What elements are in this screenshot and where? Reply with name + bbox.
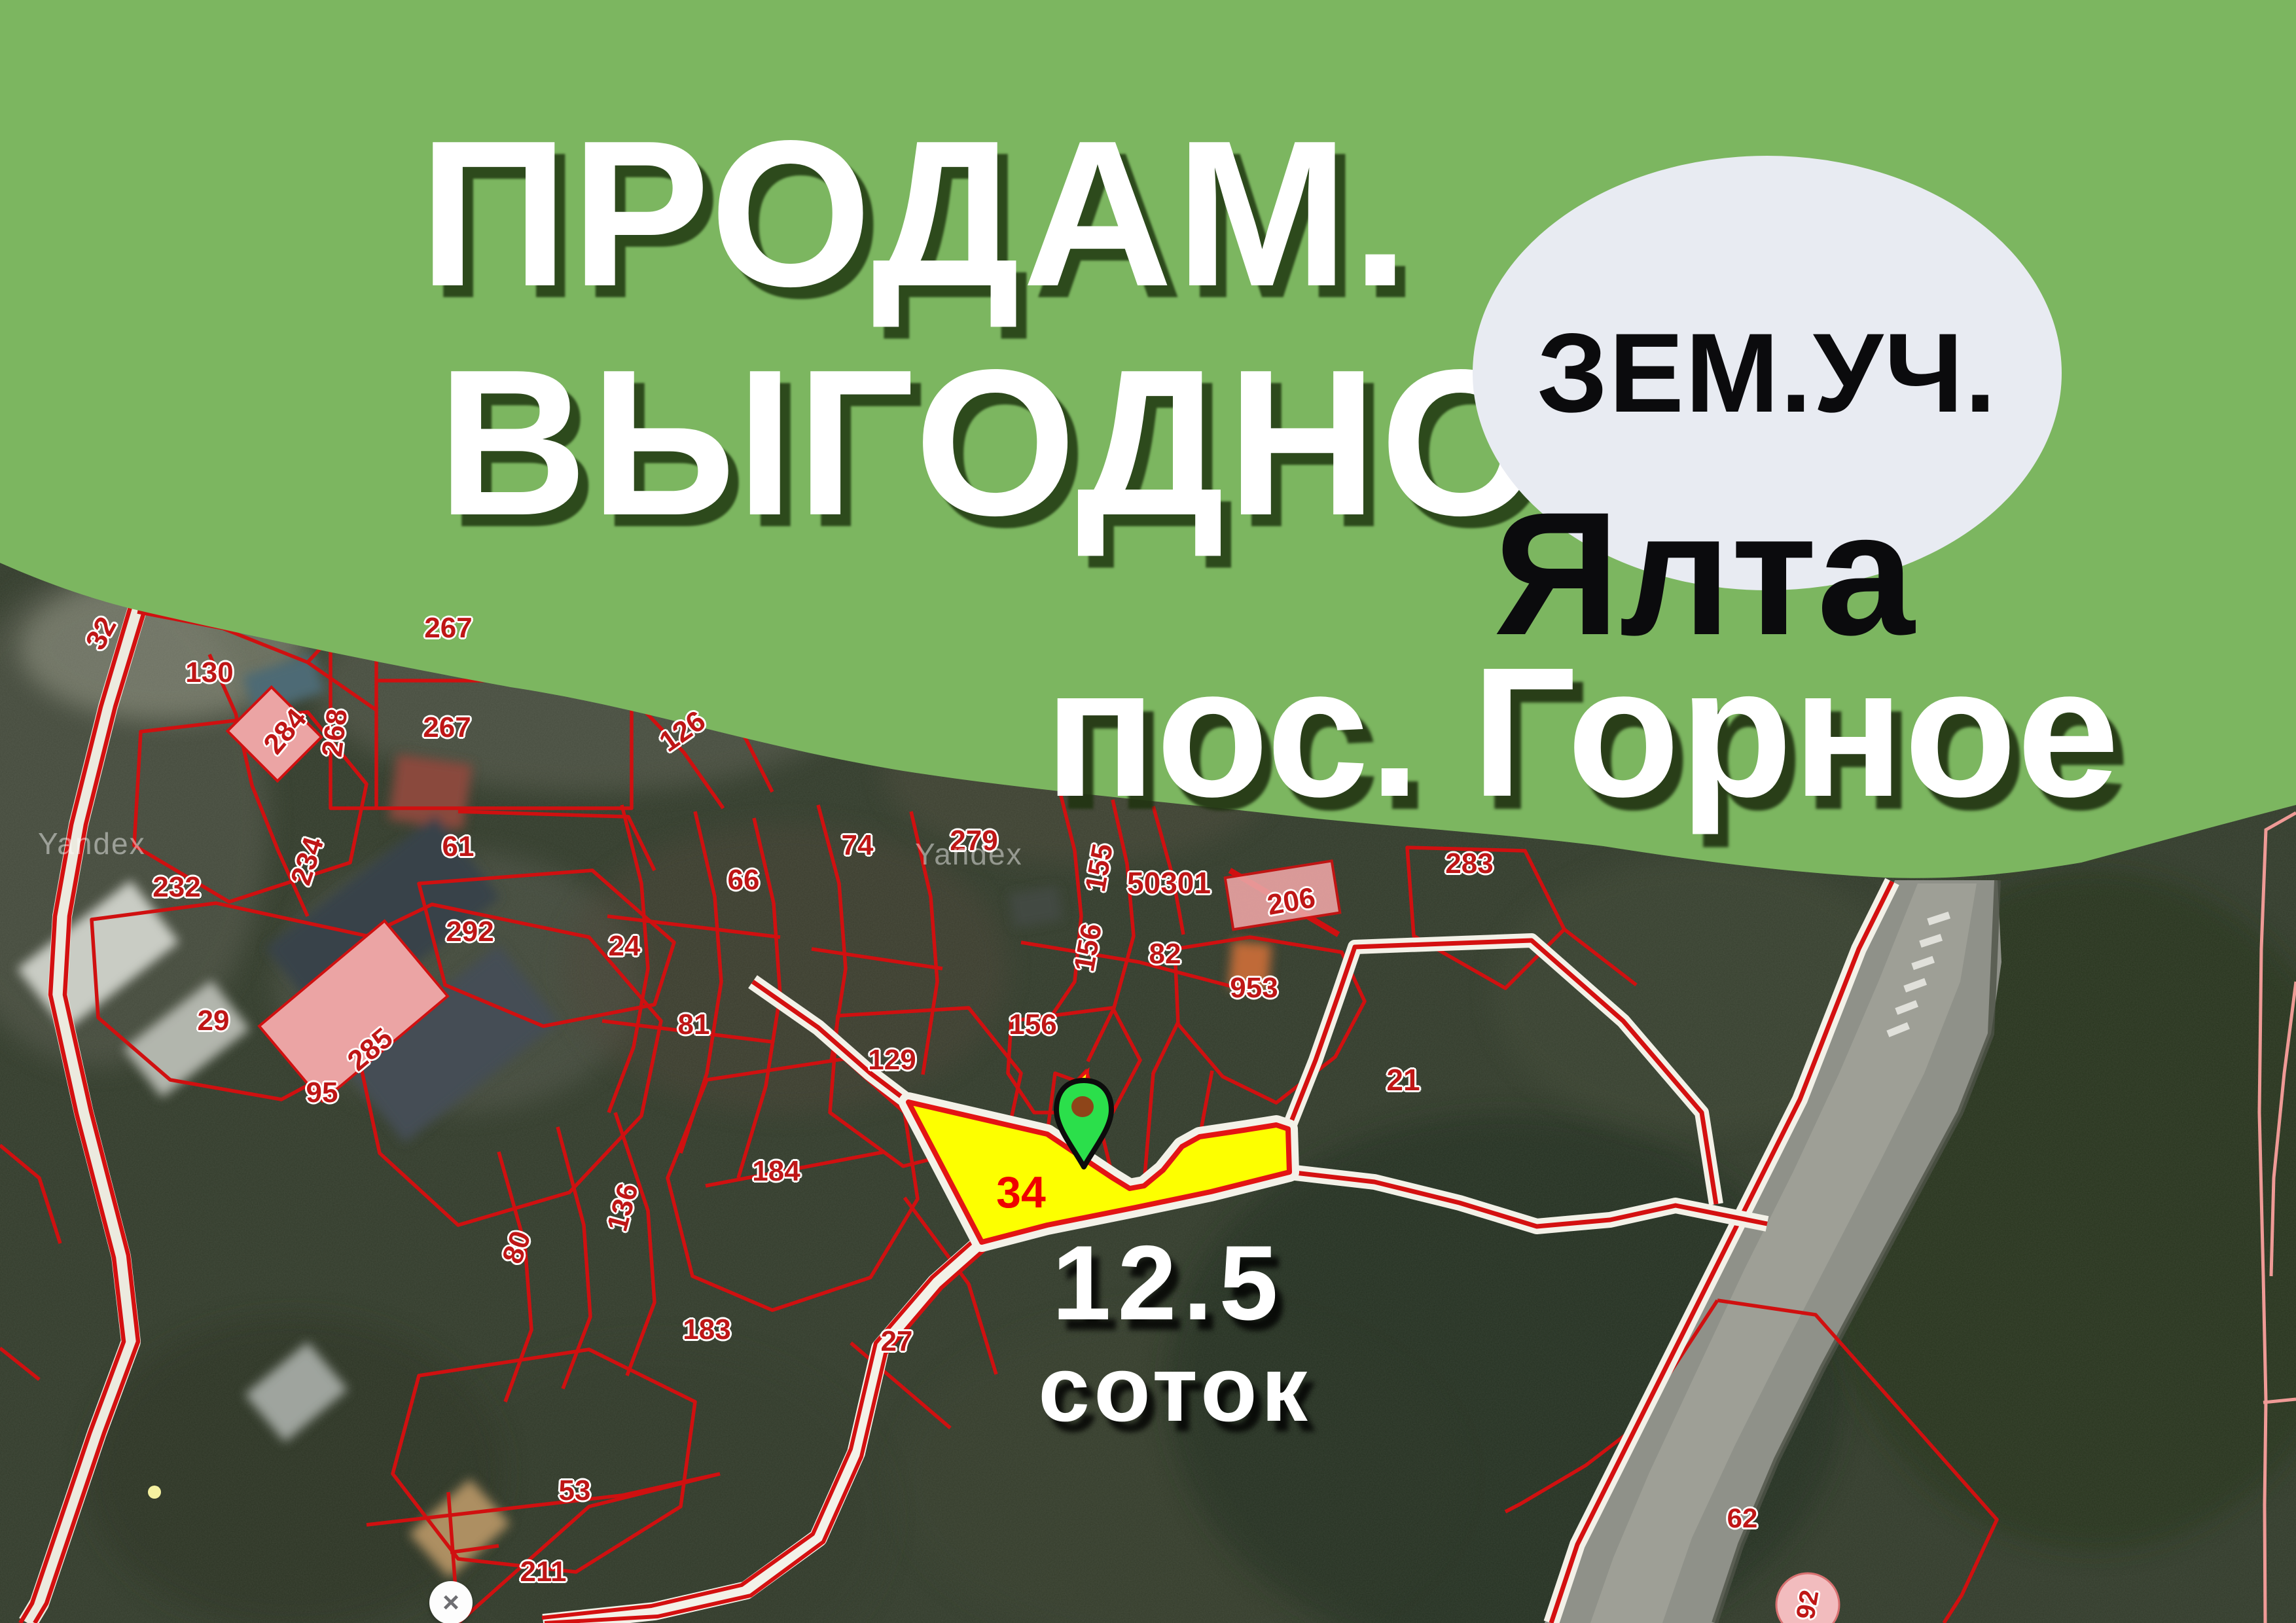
- parcel-label: 211: [520, 1558, 567, 1586]
- parcel-label: 130: [185, 658, 233, 687]
- parcel-label: 953: [1230, 974, 1278, 1003]
- parcel-label: 156: [1009, 1010, 1056, 1039]
- parcel-label: 183: [683, 1315, 730, 1344]
- parcel-label: 53: [559, 1476, 591, 1505]
- parcel-label: 267: [423, 713, 471, 742]
- yandex-watermark: Yandex: [38, 826, 146, 861]
- area-value: 12.5: [972, 1230, 1365, 1336]
- title-line-2: ВЫГОДНО!: [437, 339, 1617, 547]
- parcel-label: 184: [752, 1157, 800, 1186]
- parcel-label: 267: [424, 614, 472, 643]
- parcel-number-label: 34: [978, 1170, 1064, 1215]
- parcel-label: 92: [1792, 1588, 1823, 1622]
- parcel-label: 292: [446, 918, 493, 946]
- parcel-label: 95: [306, 1079, 338, 1107]
- parcel-label: 62: [1727, 1505, 1758, 1532]
- parcel-label: 66: [728, 866, 760, 895]
- parcel-label: 27: [881, 1327, 913, 1356]
- parcel-label: 21: [1386, 1065, 1420, 1095]
- close-marker[interactable]: ×: [429, 1581, 473, 1623]
- parcel-label: 268: [318, 707, 353, 758]
- title-line-1: ПРОДАМ.: [419, 110, 1412, 318]
- parcel-label: 61: [442, 832, 475, 861]
- parcel-label: 82: [1149, 940, 1181, 969]
- parcel-label: 24: [609, 932, 641, 961]
- flyer: ПРОДАМ. ВЫГОДНО! ЗЕМ.УЧ. Ялта пос. Горно…: [0, 0, 2296, 1623]
- parcel-label: 81: [678, 1010, 710, 1039]
- parcel-label: 129: [868, 1046, 916, 1075]
- yandex-watermark: Yandex: [915, 836, 1023, 872]
- village-name: пос. Горное: [1045, 640, 2119, 825]
- parcel-label: 232: [152, 873, 200, 902]
- badge-label: ЗЕМ.УЧ.: [1537, 308, 1997, 438]
- parcel-label: 283: [1445, 849, 1493, 878]
- parcel-label: 74: [842, 831, 874, 860]
- area-unit: соток: [972, 1343, 1378, 1436]
- parcel-label: 29: [198, 1007, 230, 1035]
- close-icon: ×: [442, 1586, 459, 1619]
- parcel-label: 50301: [1127, 868, 1211, 898]
